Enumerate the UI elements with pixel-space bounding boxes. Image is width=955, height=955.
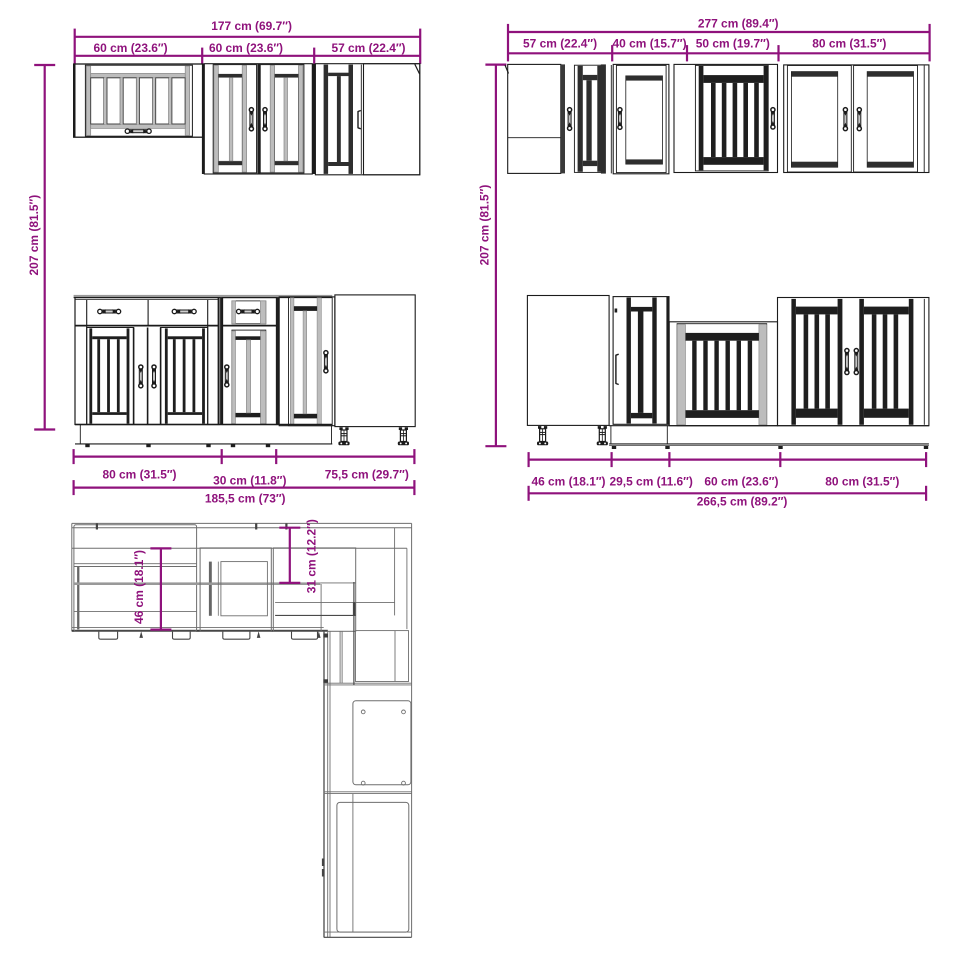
svg-text:177 cm (69.7″): 177 cm (69.7″) — [211, 19, 292, 33]
svg-text:29,5 cm (11.6″): 29,5 cm (11.6″) — [610, 474, 693, 488]
svg-text:40 cm (15.7″): 40 cm (15.7″) — [613, 37, 687, 51]
svg-text:185,5 cm (73″): 185,5 cm (73″) — [205, 491, 286, 505]
svg-text:207 cm (81.5″): 207 cm (81.5″) — [27, 195, 41, 276]
svg-text:46 cm (18.1″): 46 cm (18.1″) — [531, 474, 605, 488]
svg-text:207 cm (81.5″): 207 cm (81.5″) — [477, 185, 491, 266]
svg-text:60 cm (23.6″): 60 cm (23.6″) — [209, 41, 283, 55]
svg-text:46 cm (18.1″): 46 cm (18.1″) — [132, 550, 146, 624]
svg-text:266,5 cm (89.2″): 266,5 cm (89.2″) — [697, 494, 788, 508]
svg-text:75,5 cm (29.7″): 75,5 cm (29.7″) — [325, 468, 409, 482]
svg-text:57 cm (22.4″): 57 cm (22.4″) — [331, 41, 405, 55]
svg-text:30 cm (11.8″): 30 cm (11.8″) — [213, 473, 286, 487]
svg-text:277 cm (89.4″): 277 cm (89.4″) — [698, 17, 779, 31]
svg-text:60 cm (23.6″): 60 cm (23.6″) — [94, 41, 168, 55]
svg-text:80 cm (31.5″): 80 cm (31.5″) — [812, 37, 886, 51]
svg-text:60 cm (23.6″): 60 cm (23.6″) — [704, 474, 778, 488]
svg-text:31 cm (12.2″): 31 cm (12.2″) — [305, 519, 319, 593]
svg-text:80 cm (31.5″): 80 cm (31.5″) — [825, 474, 899, 488]
svg-text:50 cm (19.7″): 50 cm (19.7″) — [696, 37, 770, 51]
svg-text:80 cm (31.5″): 80 cm (31.5″) — [102, 468, 176, 482]
svg-text:57 cm (22.4″): 57 cm (22.4″) — [523, 37, 597, 51]
